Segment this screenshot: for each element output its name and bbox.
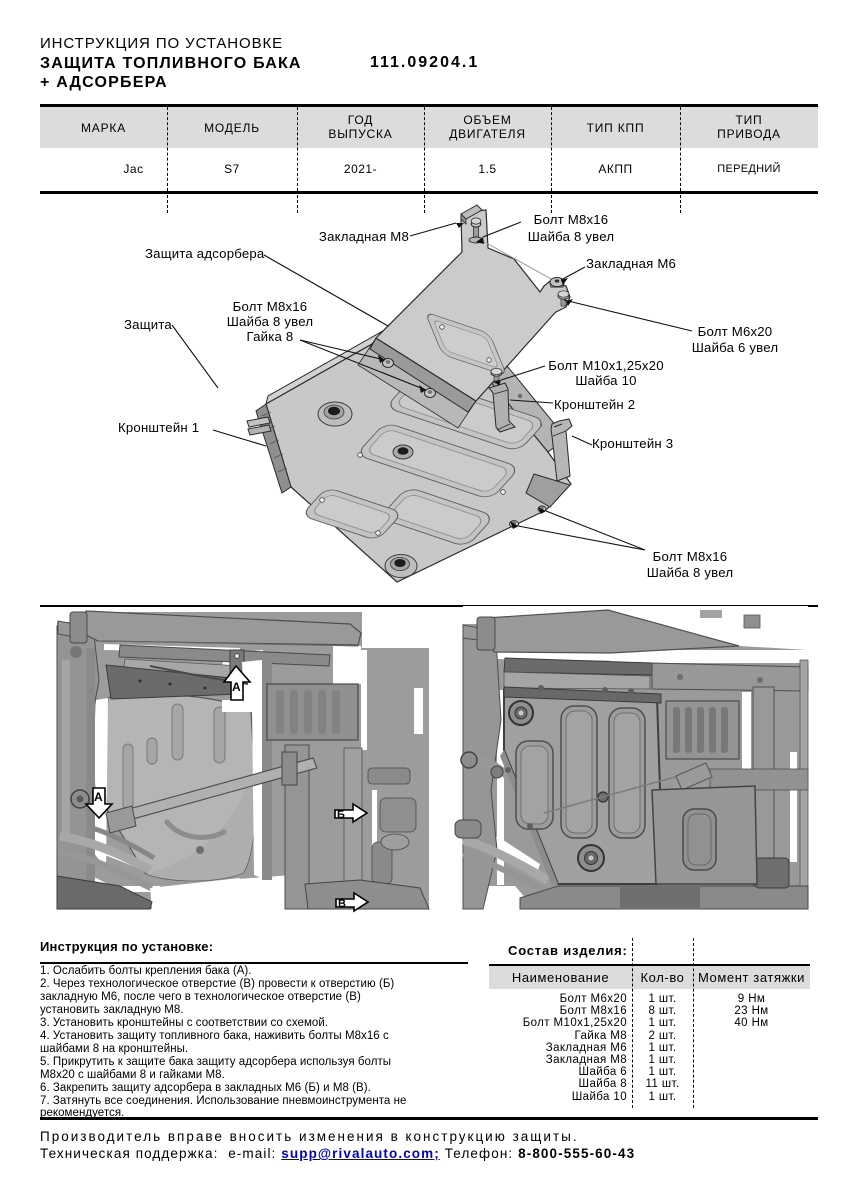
svg-text:Болт М8х16: Болт М8х16 bbox=[233, 299, 308, 314]
svg-text:Болт М6х20: Болт М6х20 bbox=[698, 324, 773, 339]
svg-text:Шайба 8 увел: Шайба 8 увел bbox=[647, 565, 733, 580]
svg-text:Защита: Защита bbox=[124, 317, 172, 332]
svg-text:А: А bbox=[232, 680, 241, 694]
svg-text:Шайба 8 увел: Шайба 8 увел bbox=[227, 314, 313, 329]
svg-text:Закладная М8: Закладная М8 bbox=[319, 229, 409, 244]
svg-text:В: В bbox=[338, 898, 346, 910]
svg-text:А: А bbox=[94, 790, 103, 804]
svg-text:Защита адсорбера: Защита адсорбера bbox=[145, 246, 265, 261]
svg-text:Кронштейн 3: Кронштейн 3 bbox=[592, 436, 673, 451]
svg-text:Шайба 10: Шайба 10 bbox=[575, 373, 636, 388]
svg-text:Болт М8х16: Болт М8х16 bbox=[534, 212, 609, 227]
svg-text:Болт М8х16: Болт М8х16 bbox=[653, 549, 728, 564]
svg-text:Гайка 8: Гайка 8 bbox=[247, 329, 294, 344]
svg-text:Шайба 6 увел: Шайба 6 увел bbox=[692, 340, 778, 355]
svg-text:Шайба 8 увел: Шайба 8 увел bbox=[528, 229, 614, 244]
svg-text:Кронштейн 1: Кронштейн 1 bbox=[118, 420, 199, 435]
svg-text:Закладная М6: Закладная М6 bbox=[586, 256, 676, 271]
svg-text:Кронштейн 2: Кронштейн 2 bbox=[554, 397, 635, 412]
svg-text:Болт М10х1,25х20: Болт М10х1,25х20 bbox=[548, 358, 663, 373]
svg-text:Б: Б bbox=[337, 809, 345, 821]
